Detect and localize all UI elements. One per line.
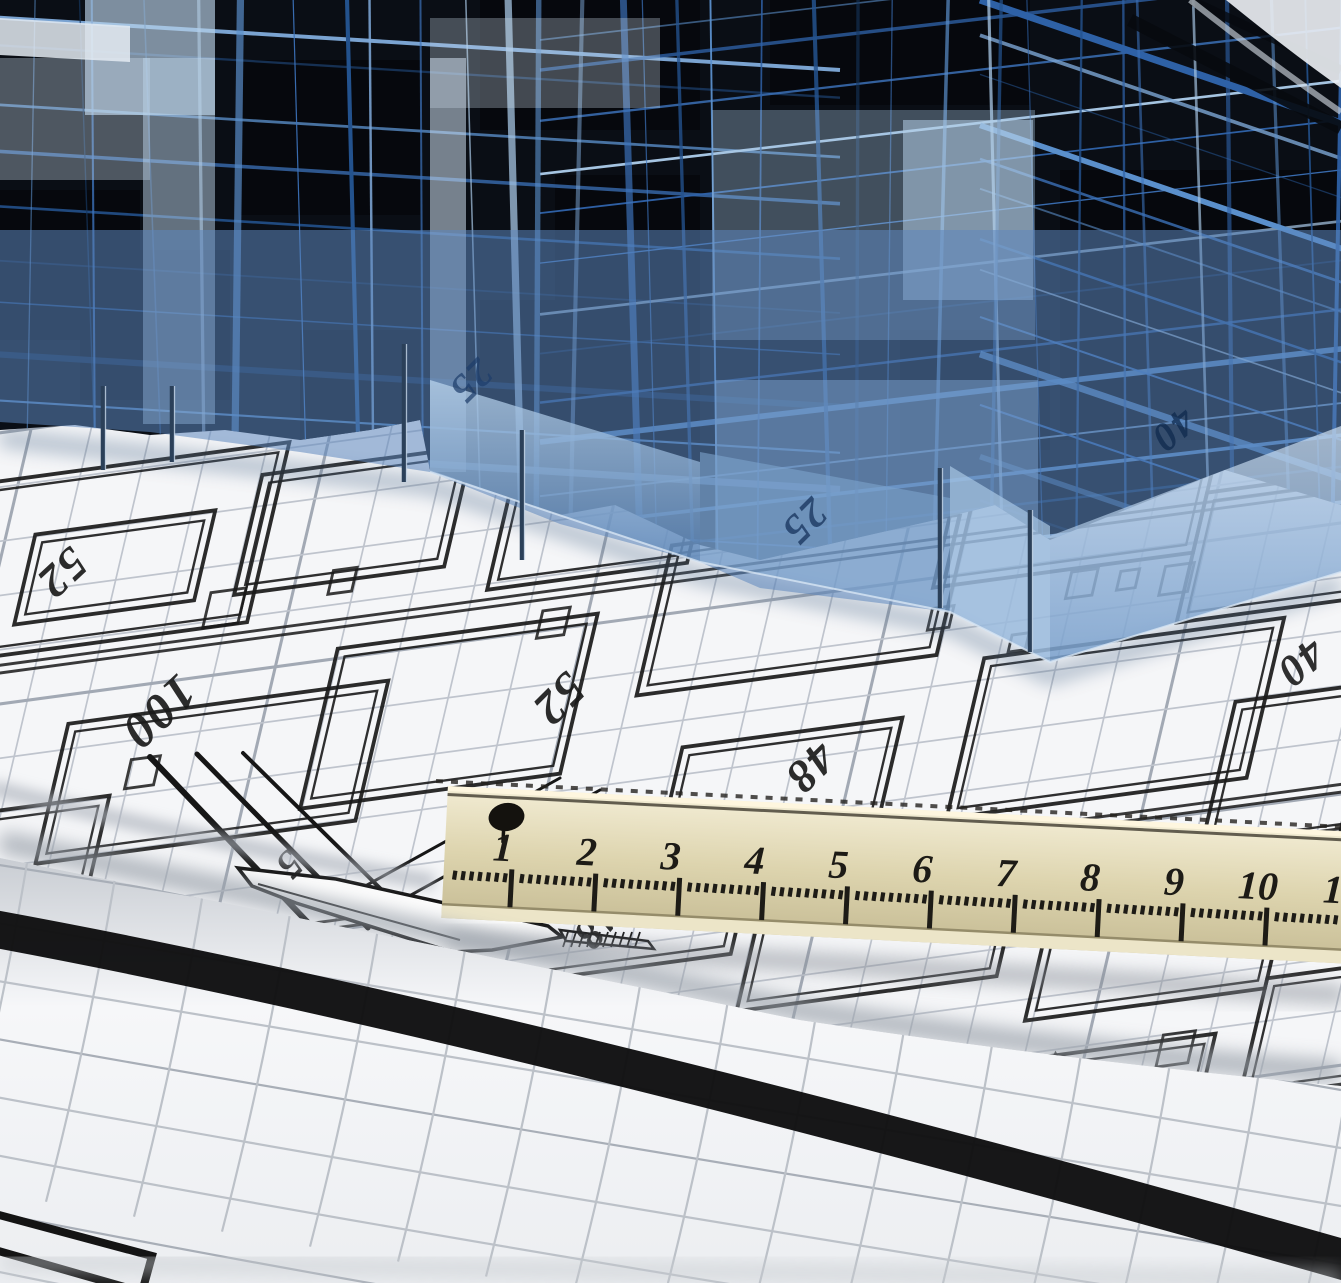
- ruler-number: 11: [1322, 866, 1341, 913]
- ruler-number: 6: [911, 846, 933, 892]
- ruler-number: 2: [575, 829, 598, 875]
- ruler-number: 10: [1237, 862, 1279, 909]
- blueprint-scene: Photo-style render: translucent blue 3D …: [0, 0, 1341, 1283]
- ruler-number: 9: [1163, 858, 1185, 904]
- ruler-number: 3: [659, 833, 682, 879]
- window-void: [240, 60, 420, 215]
- ruler-number: 1: [492, 824, 514, 870]
- ruler-number: 5: [827, 841, 849, 887]
- glass-panel: [0, 58, 150, 180]
- ruler-number: 4: [743, 837, 766, 883]
- ruler-number: 8: [1079, 854, 1101, 900]
- architectural-blueprint-photo: Photo-style render: translucent blue 3D …: [0, 0, 1341, 1283]
